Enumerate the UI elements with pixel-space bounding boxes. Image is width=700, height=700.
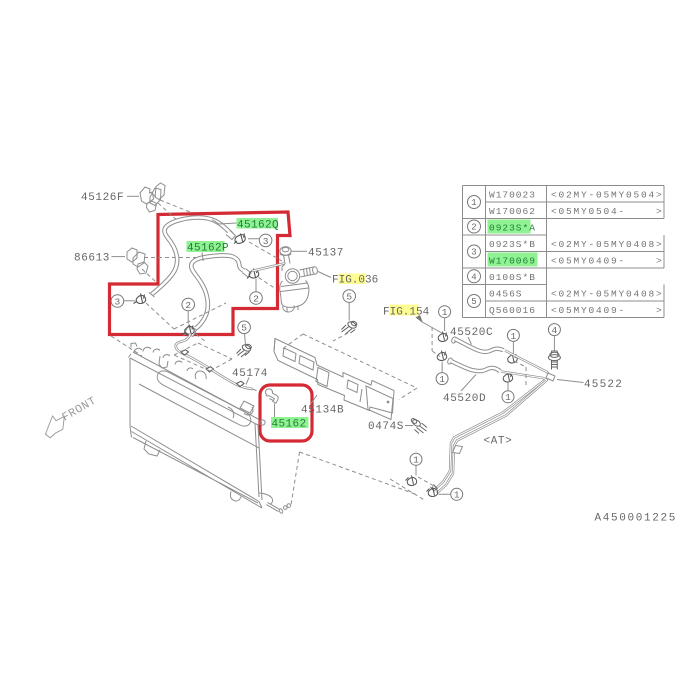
svg-text:A450001225: A450001225 — [595, 513, 678, 525]
svg-text:1: 1 — [505, 392, 511, 403]
svg-text:45162: 45162 — [272, 419, 307, 431]
svg-text:0456S: 0456S — [489, 289, 523, 300]
svg-text:5: 5 — [241, 323, 247, 334]
svg-text:5: 5 — [471, 297, 476, 307]
svg-text:45162Q: 45162Q — [237, 220, 279, 232]
svg-text:45174: 45174 — [232, 368, 268, 380]
svg-text:3: 3 — [471, 248, 476, 258]
svg-text:1: 1 — [471, 198, 476, 208]
svg-text:3: 3 — [263, 236, 269, 247]
svg-text:1: 1 — [511, 331, 517, 342]
svg-text:0474S: 0474S — [368, 421, 404, 433]
svg-text:FIG.154: FIG.154 — [383, 307, 430, 319]
svg-text:2: 2 — [185, 300, 191, 311]
svg-text:<AT>: <AT> — [484, 436, 513, 448]
svg-text:4: 4 — [471, 273, 476, 283]
svg-text:0100S*B: 0100S*B — [489, 272, 536, 283]
svg-text:W170023: W170023 — [489, 190, 536, 201]
svg-text:45520D: 45520D — [443, 393, 486, 405]
svg-text:<05MY0409- >: <05MY0409- > — [551, 256, 664, 267]
svg-text:<02MY-05MY0504>: <02MY-05MY0504> — [551, 190, 664, 201]
svg-text:45134B: 45134B — [301, 405, 344, 417]
svg-text:0923S*A: 0923S*A — [489, 223, 536, 234]
svg-text:1: 1 — [413, 455, 419, 466]
svg-text:2: 2 — [471, 223, 476, 233]
svg-text:W170069: W170069 — [489, 256, 536, 267]
svg-text:86613: 86613 — [74, 253, 110, 265]
svg-text:<05MY0409- >: <05MY0409- > — [551, 305, 664, 316]
svg-text:2: 2 — [253, 293, 259, 304]
svg-text:FIG.036: FIG.036 — [332, 275, 378, 287]
svg-text:4: 4 — [552, 325, 558, 336]
svg-text:1: 1 — [454, 490, 460, 501]
svg-text:45137: 45137 — [308, 248, 344, 260]
svg-text:3: 3 — [115, 296, 121, 307]
svg-text:<05MY0504- >: <05MY0504- > — [551, 206, 664, 217]
svg-text:1: 1 — [439, 374, 445, 385]
svg-text:W170062: W170062 — [489, 206, 536, 217]
svg-text:1: 1 — [442, 307, 448, 318]
svg-text:Q560016: Q560016 — [489, 305, 536, 316]
svg-text:5: 5 — [346, 292, 352, 303]
svg-text:45522: 45522 — [584, 379, 623, 391]
svg-text:45520C: 45520C — [450, 327, 493, 339]
svg-text:<02MY-05MY0408>: <02MY-05MY0408> — [551, 239, 664, 250]
svg-text:45126F: 45126F — [81, 192, 124, 204]
svg-text:<02MY-05MY0408>: <02MY-05MY0408> — [551, 289, 664, 300]
svg-text:0923S*B: 0923S*B — [489, 239, 536, 250]
svg-text:45162P: 45162P — [187, 243, 229, 255]
